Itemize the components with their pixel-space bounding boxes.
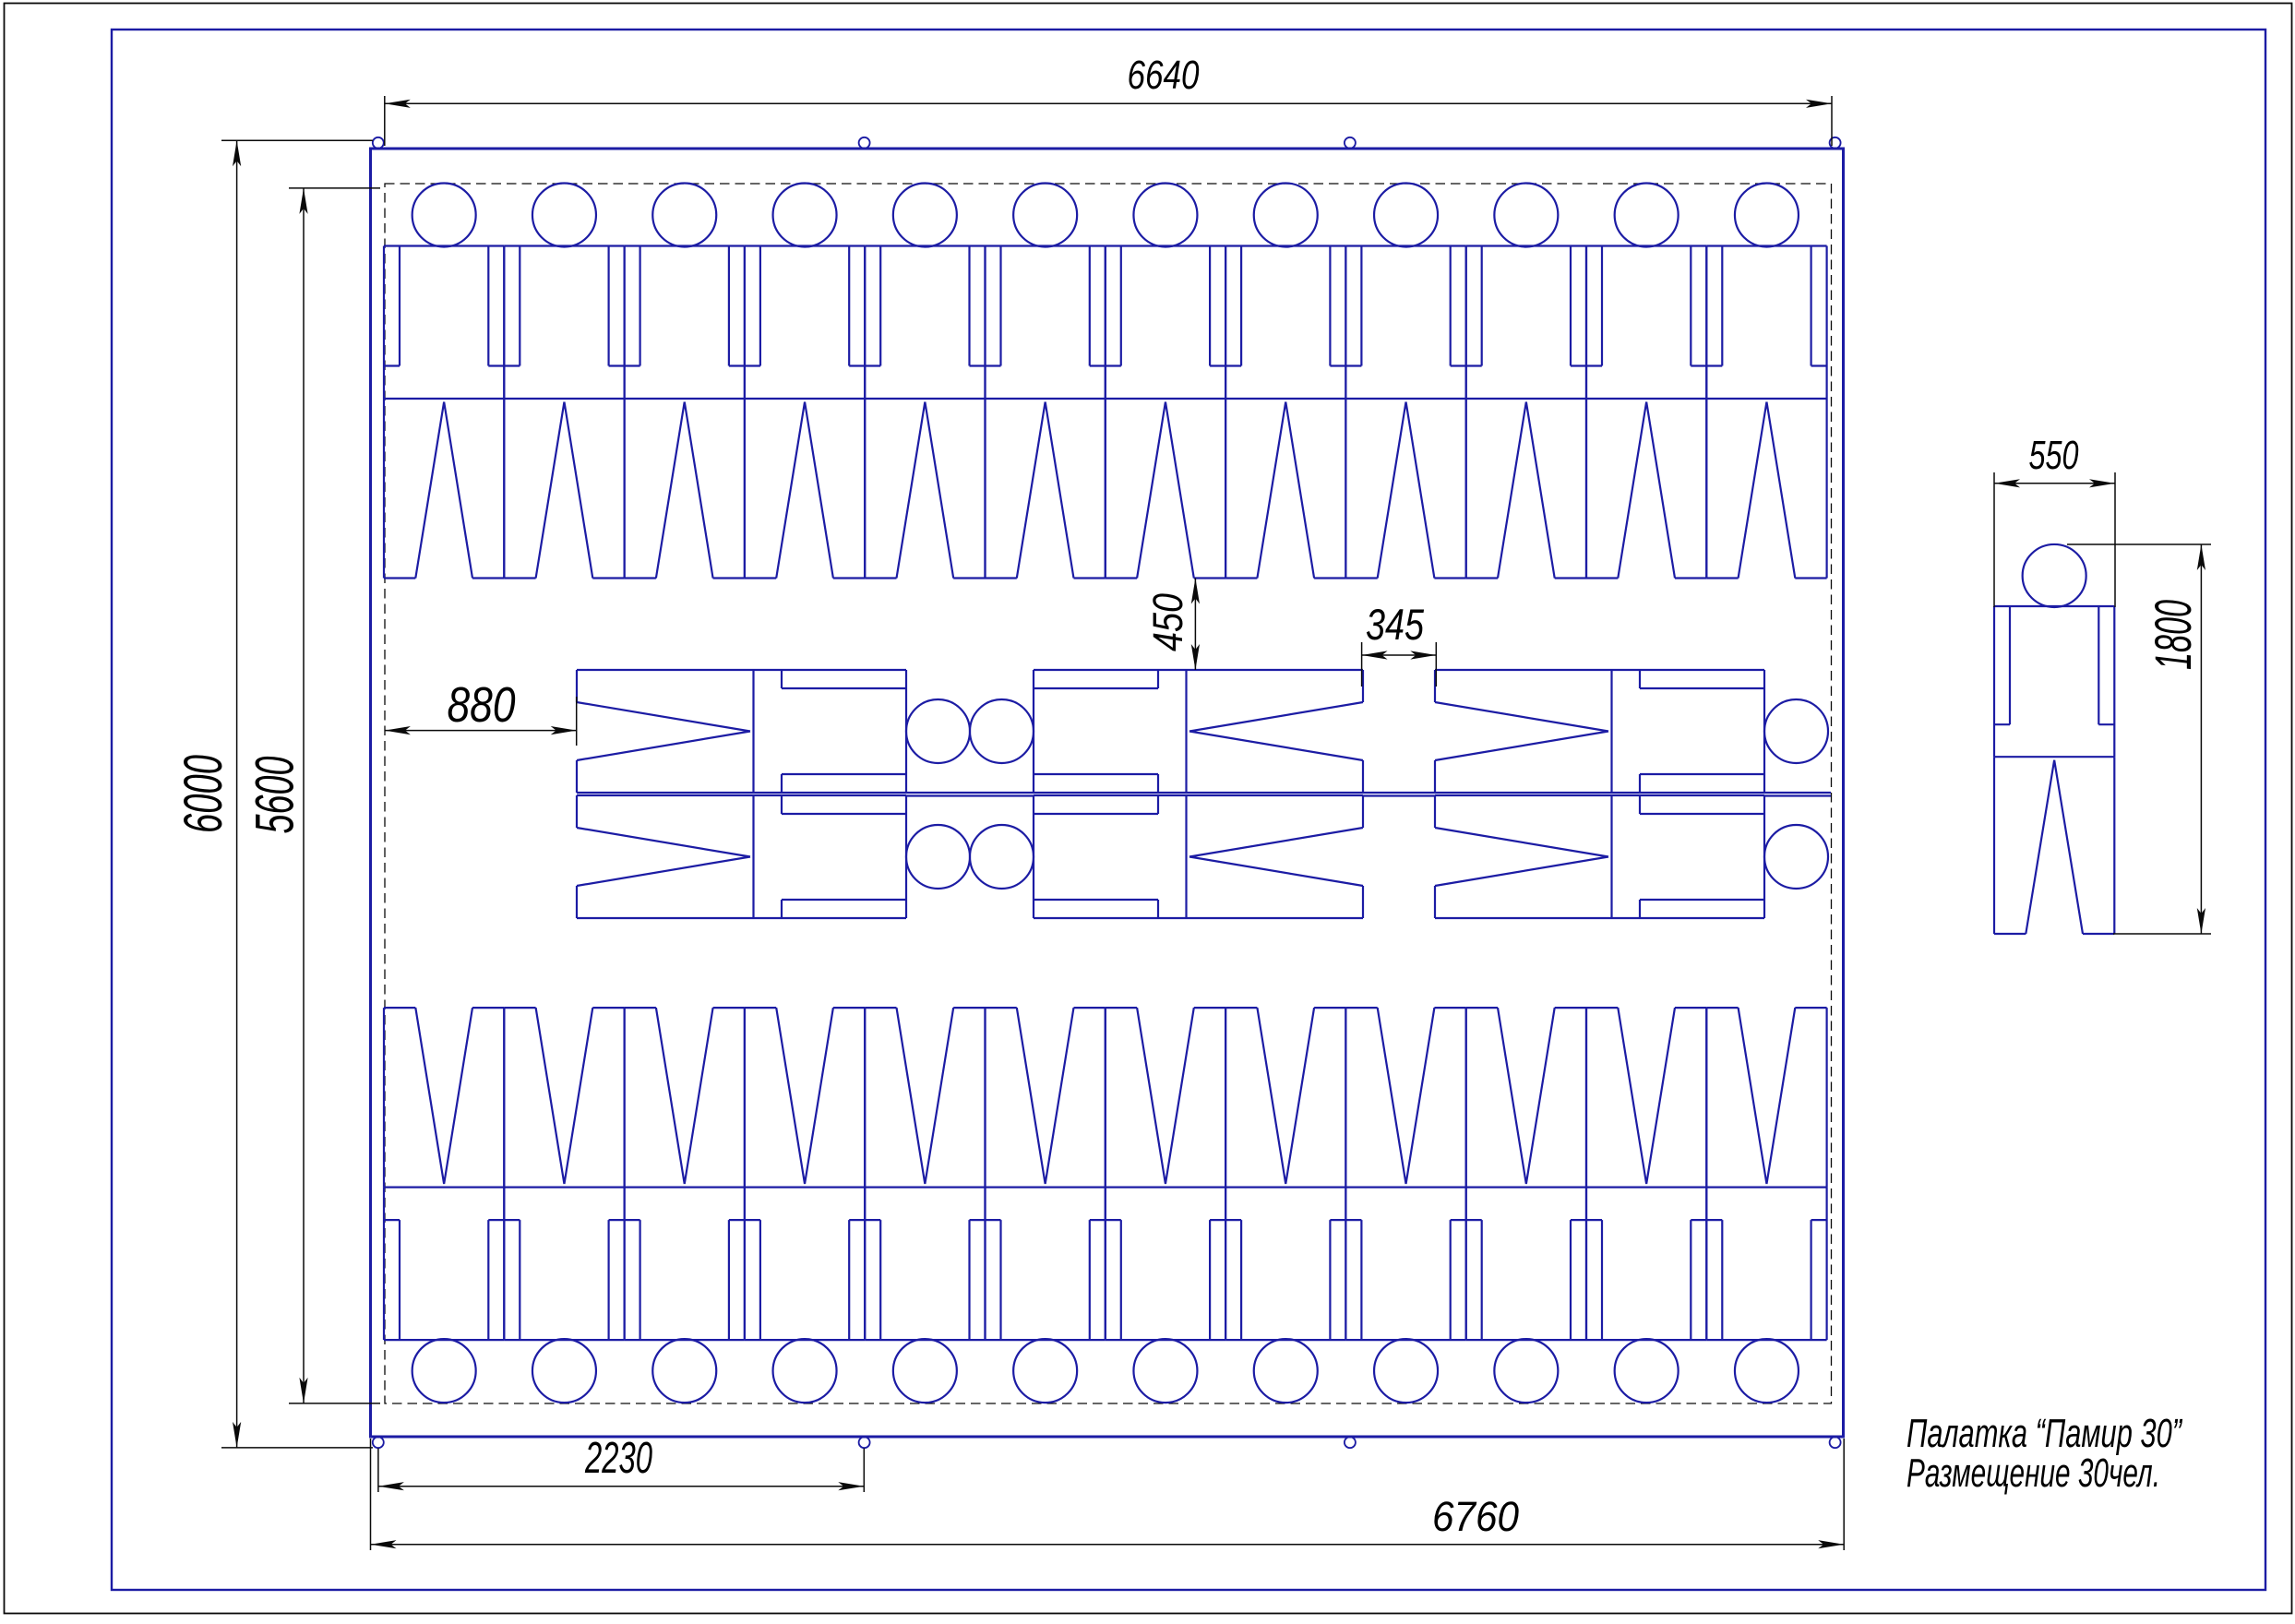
svg-text:345: 345 (1366, 600, 1425, 649)
svg-text:6640: 6640 (1128, 53, 1200, 98)
svg-text:550: 550 (2029, 433, 2079, 478)
svg-text:880: 880 (448, 677, 516, 733)
svg-text:6760: 6760 (1432, 1493, 1519, 1540)
svg-text:6000: 6000 (173, 755, 233, 833)
svg-text:1800: 1800 (2144, 600, 2202, 670)
svg-text:2230: 2230 (584, 1434, 652, 1483)
svg-text:Палатка “Памир 30”: Палатка “Памир 30” (1907, 1411, 2183, 1456)
svg-text:450: 450 (1144, 593, 1191, 651)
svg-text:Размещение 30чел.: Размещение 30чел. (1907, 1451, 2160, 1496)
svg-text:5600: 5600 (245, 757, 305, 834)
